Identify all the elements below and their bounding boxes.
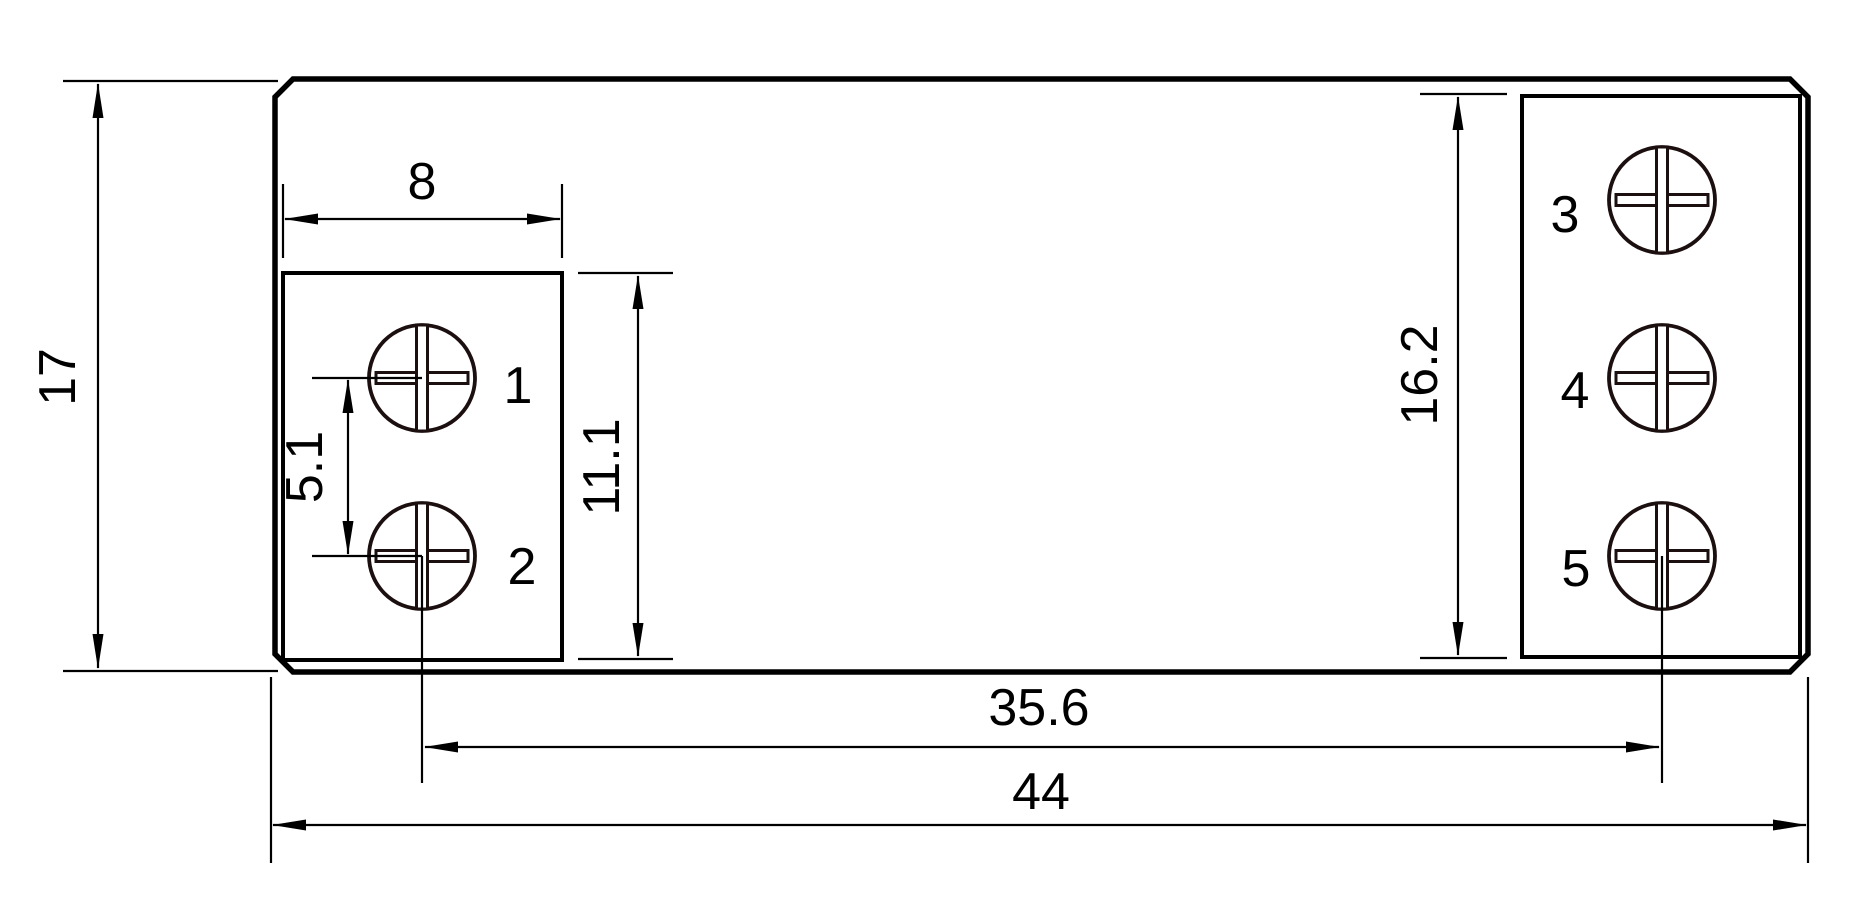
- dim-16-2-arrow-bottom: [1453, 622, 1464, 656]
- dim-5-1-arrow-top: [343, 379, 354, 413]
- dim-11-1-arrow-bottom: [633, 623, 644, 657]
- screw-4-slot-vertical: [1657, 325, 1668, 431]
- terminal-3-label: 3: [1551, 186, 1580, 244]
- dim-35-6-label: 35.6: [988, 679, 1089, 737]
- screw-terminal-3: [1609, 147, 1715, 253]
- dim-17-arrow-top: [93, 83, 104, 118]
- dim-17-arrow-bottom: [93, 634, 104, 669]
- dim-35-6-arrow-right: [1626, 742, 1660, 753]
- technical-drawing-canvas: 17 8 5.1 11.1 16.2 35.6 44 1 2 3 4 5: [0, 0, 1866, 901]
- dim-5-1-label: 5.1: [276, 431, 334, 503]
- screw-terminal-4: [1609, 325, 1715, 431]
- dim-16-2-label: 16.2: [1391, 324, 1449, 425]
- dim-44-label: 44: [1012, 763, 1070, 821]
- dim-17-label: 17: [29, 348, 87, 406]
- terminal-5-label: 5: [1562, 540, 1591, 598]
- screw-3-slot-vertical: [1657, 147, 1668, 253]
- dim-11-1-label: 11.1: [573, 418, 631, 515]
- dim-11-1-arrow-top: [633, 275, 644, 309]
- terminal-1-label: 1: [504, 357, 533, 415]
- dim-8-arrow-right: [527, 214, 561, 225]
- dim-8-arrow-left: [284, 214, 318, 225]
- dim-44-arrow-left: [272, 820, 306, 831]
- dim-5-1-arrow-bottom: [343, 521, 354, 555]
- terminal-2-label: 2: [508, 538, 537, 596]
- dim-44-arrow-right: [1773, 820, 1807, 831]
- terminal-4-label: 4: [1561, 362, 1590, 420]
- dim-8-label: 8: [408, 153, 437, 211]
- drawing-page: 17 8 5.1 11.1 16.2 35.6 44 1 2 3 4 5: [0, 0, 1866, 901]
- dim-16-2-arrow-top: [1453, 96, 1464, 130]
- dim-17: [63, 81, 278, 671]
- dim-35-6-arrow-left: [424, 742, 458, 753]
